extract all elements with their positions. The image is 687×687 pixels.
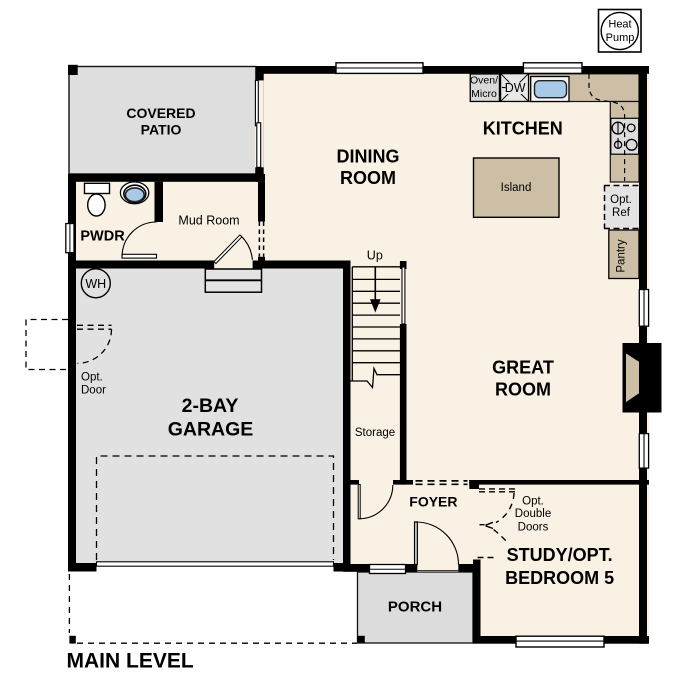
svg-text:STUDY/OPT.: STUDY/OPT. <box>507 545 613 565</box>
svg-text:DINING: DINING <box>337 146 400 166</box>
svg-text:Mud Room: Mud Room <box>178 214 239 228</box>
svg-text:Up: Up <box>367 249 383 263</box>
svg-text:PATIO: PATIO <box>141 122 182 138</box>
svg-text:ROOM: ROOM <box>340 168 396 188</box>
svg-text:Opt.: Opt. <box>522 496 544 508</box>
svg-text:COVERED: COVERED <box>126 105 195 121</box>
svg-text:PORCH: PORCH <box>388 598 442 615</box>
svg-text:Opt.: Opt. <box>610 194 632 206</box>
svg-text:FOYER: FOYER <box>409 494 457 510</box>
svg-text:MAIN LEVEL: MAIN LEVEL <box>67 650 194 673</box>
svg-text:Micro: Micro <box>471 88 497 100</box>
svg-text:BEDROOM 5: BEDROOM 5 <box>505 568 614 588</box>
svg-text:Island: Island <box>501 182 532 194</box>
svg-text:GARAGE: GARAGE <box>168 419 254 441</box>
svg-text:Pump: Pump <box>606 32 635 44</box>
svg-text:KITCHEN: KITCHEN <box>483 119 563 139</box>
svg-text:ROOM: ROOM <box>495 380 551 400</box>
svg-text:Pantry: Pantry <box>616 239 628 272</box>
svg-text:Storage: Storage <box>355 427 395 439</box>
svg-text:Double: Double <box>515 508 551 520</box>
svg-text:2-BAY: 2-BAY <box>182 395 239 417</box>
svg-text:Ref: Ref <box>612 207 631 219</box>
svg-text:WH: WH <box>85 277 106 291</box>
svg-text:Door: Door <box>81 384 106 396</box>
svg-text:Opt.: Opt. <box>81 372 103 384</box>
svg-text:Doors: Doors <box>518 522 549 534</box>
svg-text:Heat: Heat <box>608 19 631 31</box>
svg-text:Oven/: Oven/ <box>470 75 498 87</box>
svg-text:PWDR: PWDR <box>80 228 125 244</box>
svg-text:GREAT: GREAT <box>492 358 554 378</box>
svg-text:DW: DW <box>505 81 526 95</box>
